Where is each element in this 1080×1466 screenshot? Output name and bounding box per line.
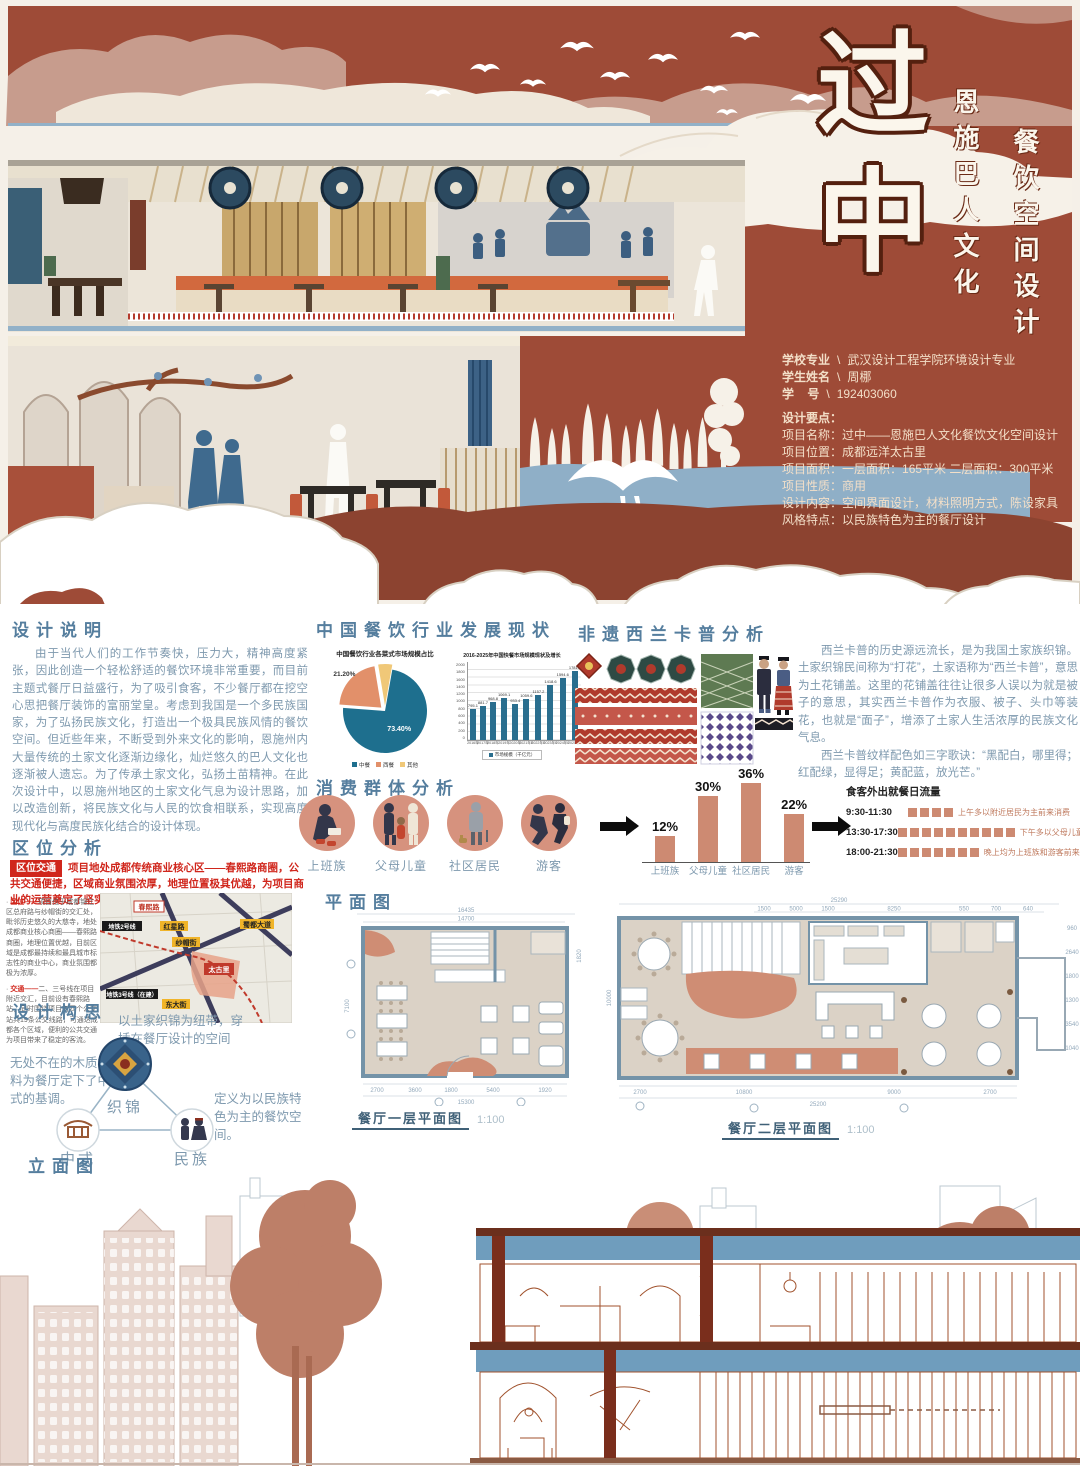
group-label: 上班族 bbox=[298, 857, 356, 874]
flow-units bbox=[898, 848, 979, 857]
consumer-group: 游客 bbox=[520, 794, 578, 874]
location-bullet: · 区位——项目位于成都锦江区总府路与纱帽街的交汇处，毗邻历史悠久的大慈寺，地处… bbox=[6, 898, 98, 979]
flow-unit-square bbox=[920, 808, 929, 817]
svg-text:15300: 15300 bbox=[458, 1100, 475, 1106]
consumer-bar-社区居民: 36%社区居民 bbox=[738, 766, 764, 862]
bar-2022年E: 1157.22022年E bbox=[532, 689, 544, 740]
group-label: 游客 bbox=[520, 857, 578, 874]
pie-value-label: 21.20% bbox=[333, 671, 355, 678]
y-tick: 1800 bbox=[456, 669, 465, 674]
svg-text:7100: 7100 bbox=[345, 999, 351, 1013]
flow-unit-square bbox=[932, 808, 941, 817]
info-point: 项目名称：过中——恩施巴人文化餐饮文化空间设计 bbox=[782, 427, 1076, 444]
ethnic-couple-icon bbox=[171, 1109, 213, 1151]
svg-text:1920: 1920 bbox=[538, 1088, 552, 1094]
concept-diagram: 织锦 中式 民族 bbox=[30, 1028, 280, 1168]
indigo-textile-icon bbox=[468, 360, 492, 446]
plant-icon bbox=[44, 256, 56, 276]
brocade-medallion-icon bbox=[99, 1038, 151, 1090]
project-info: 学校专业\武汉设计工程学院环境设计专业 学生姓名\周梛 学 号\19240306… bbox=[782, 352, 1076, 529]
svg-text:10000: 10000 bbox=[607, 989, 613, 1006]
medallion-row bbox=[577, 654, 695, 683]
visit-flow: 食客外出就餐日流量 9:30-11:30上午多以附近居民为主前来消费 13:30… bbox=[846, 784, 1080, 867]
poster-subtitle-2: 餐饮空间设计 bbox=[1006, 128, 1043, 344]
svg-text:25200: 25200 bbox=[810, 1102, 827, 1108]
blue-accent-wall bbox=[8, 188, 42, 284]
flow-unit-square bbox=[958, 828, 967, 837]
legend-item: 西餐 bbox=[376, 761, 394, 769]
xilankapu-paragraph: 西兰卡普的历史源远流长，是为我国土家族织锦。土家织锦民间称为“打花”，土家语称为… bbox=[798, 643, 1078, 748]
consumer-bar-父母儿童: 30%父母儿童 bbox=[695, 779, 721, 862]
location-map: 春熙路 红星路 纱帽街 蜀都大道 东大街 太古里 地铁2号线 地铁3号线（在建） bbox=[100, 893, 292, 1023]
concept-node-label: 民族 bbox=[174, 1151, 210, 1168]
flow-time: 18:00-21:30 bbox=[846, 847, 898, 858]
flow-units bbox=[898, 828, 1015, 837]
consumer-bar-游客: 22%游客 bbox=[781, 797, 807, 862]
svg-text:3600: 3600 bbox=[408, 1088, 422, 1094]
flow-unit-square bbox=[946, 828, 955, 837]
flow-desc: 下午多以父母儿童和游客 bbox=[1020, 827, 1080, 838]
svg-text:1500: 1500 bbox=[821, 907, 835, 913]
design-poster: 过 中 恩施巴人文化 餐饮空间设计 学校专业\武汉设计工程学院环境设计专业 学生… bbox=[0, 0, 1080, 1466]
info-row: 学生姓名\周梛 bbox=[782, 369, 1076, 386]
svg-text:1800: 1800 bbox=[444, 1088, 458, 1094]
y-tick: 400 bbox=[456, 720, 465, 725]
consumer-group: 父母儿童 bbox=[372, 794, 430, 874]
flow-unit-square bbox=[982, 828, 991, 837]
arrow-right-icon bbox=[600, 822, 626, 831]
flow-unit-square bbox=[1006, 828, 1015, 837]
section-title-elevation: 立面图 bbox=[28, 1152, 100, 1177]
flow-unit-square bbox=[910, 828, 919, 837]
svg-text:1500: 1500 bbox=[757, 907, 771, 913]
bar-2024年E: 1594.62024年E bbox=[557, 672, 569, 740]
svg-text:3540: 3540 bbox=[1065, 1022, 1079, 1028]
bar-2017年: 881.72017年 bbox=[478, 700, 488, 740]
flow-unit-square bbox=[908, 808, 917, 817]
info-value: 武汉设计工程学院环境设计专业 bbox=[847, 352, 1015, 369]
poster-title-char1: 过 bbox=[788, 18, 958, 155]
svg-text:1040: 1040 bbox=[1065, 1046, 1079, 1052]
pie-value-label: 73.40% bbox=[387, 726, 412, 733]
cuisine-pie-chart: 中国餐饮行业各菜式市场规模占比 73.40%21.20%5.40% 中餐西餐其他 bbox=[316, 648, 454, 769]
orange-banquette bbox=[176, 276, 668, 290]
flow-unit-square bbox=[946, 848, 955, 857]
svg-text:2700: 2700 bbox=[983, 1090, 997, 1096]
flow-unit-square bbox=[994, 828, 1003, 837]
plant-icon bbox=[436, 256, 450, 290]
flow-row: 18:00-21:30晚上均为上班族和游客前来消费 bbox=[846, 847, 1080, 858]
flow-unit-square bbox=[970, 828, 979, 837]
info-point: 风格特点：以民族特色为主的餐厅设计 bbox=[782, 512, 1076, 529]
chinese-building-icon bbox=[57, 1109, 99, 1151]
svg-text:9000: 9000 bbox=[887, 1090, 901, 1096]
y-tick: 1200 bbox=[456, 691, 465, 696]
section-title-location: 区位分析 bbox=[12, 834, 108, 859]
map-label-road: 东大街 bbox=[166, 1000, 187, 1009]
render-second-floor bbox=[8, 160, 745, 332]
xilankapu-paragraph: 西兰卡普纹样配色如三字歌诀：“黑配白，哪里得；红配绿，显得足；黄配蓝，放光芒。” bbox=[798, 748, 1078, 783]
y-tick: 1000 bbox=[456, 698, 465, 703]
group-label: 社区居民 bbox=[446, 857, 504, 874]
flow-unit-square bbox=[944, 808, 953, 817]
svg-text:1820: 1820 bbox=[577, 949, 583, 963]
map-label-road: 红星路 bbox=[164, 922, 186, 931]
svg-text:16435: 16435 bbox=[458, 908, 475, 914]
y-tick: 1400 bbox=[456, 684, 465, 689]
svg-text:1300: 1300 bbox=[1065, 998, 1079, 1004]
svg-text:640: 640 bbox=[1023, 907, 1034, 913]
svg-text:1800: 1800 bbox=[1065, 974, 1079, 980]
flow-unit-square bbox=[910, 848, 919, 857]
section-title-concept: 设计构思 bbox=[12, 998, 108, 1023]
poster-title-char2: 中 bbox=[788, 155, 958, 292]
svg-text:2700: 2700 bbox=[370, 1088, 384, 1094]
bar-chart-plot: 795.12016年881.72017年968.82018年1069.12019… bbox=[467, 662, 581, 741]
community-resident-icon bbox=[446, 794, 504, 852]
bar-chart-legend: 市场规模（千亿元） bbox=[456, 750, 568, 760]
legend-swatch bbox=[489, 753, 493, 757]
info-point: 设计内容：空间界面设计，材料照明方式，陈设家具 bbox=[782, 495, 1076, 512]
svg-text:5400: 5400 bbox=[486, 1088, 500, 1094]
map-label-road: 纱帽街 bbox=[176, 938, 197, 947]
bar-2021年E: 1059.62021年E bbox=[520, 693, 532, 740]
info-value: 周梛 bbox=[847, 369, 871, 386]
info-point: 项目性质：商用 bbox=[782, 478, 1076, 495]
floor-plan-1: 16435 14700 bbox=[335, 906, 597, 1106]
svg-text:550: 550 bbox=[959, 907, 970, 913]
group-label: 父母儿童 bbox=[372, 857, 430, 874]
map-label-metro: 地铁2号线 bbox=[108, 923, 135, 931]
parents-children-icon bbox=[372, 794, 430, 852]
flow-title: 食客外出就餐日流量 bbox=[846, 784, 1080, 799]
flow-unit-square bbox=[898, 828, 907, 837]
map-label-road: 春熙路 bbox=[138, 903, 161, 912]
poster-title: 过 中 bbox=[788, 18, 958, 291]
tujia-costume-figures-icon bbox=[755, 656, 793, 730]
plan2-caption: 餐厅二层平面图1:100 bbox=[722, 1118, 875, 1137]
design-points-title: 设计要点： bbox=[782, 410, 1076, 427]
flow-row: 9:30-11:30上午多以附近居民为主前来消费 bbox=[846, 807, 1080, 818]
svg-text:2700: 2700 bbox=[633, 1090, 647, 1096]
consumer-groups: 上班族 父母儿童 社区居民 bbox=[298, 794, 578, 874]
svg-text:5000: 5000 bbox=[789, 907, 803, 913]
pie-value-label: 5.40% bbox=[376, 659, 395, 660]
map-label-metro: 地铁3号线（在建） bbox=[106, 991, 157, 999]
section-title-xilankapu: 非遗西兰卡普分析 bbox=[578, 620, 770, 645]
flow-unit-square bbox=[898, 848, 907, 857]
consumer-group: 上班族 bbox=[298, 794, 356, 874]
flow-unit-square bbox=[922, 828, 931, 837]
elevation-illustration bbox=[0, 1176, 1080, 1466]
info-value: 192403060 bbox=[837, 386, 897, 403]
flow-units bbox=[908, 808, 953, 817]
legend-item: 其他 bbox=[400, 761, 418, 769]
bar-2020年: 933.42020年 bbox=[510, 698, 520, 740]
section-title-industry: 中国餐饮行业发展现状 bbox=[316, 616, 556, 641]
y-tick: 2000 bbox=[456, 662, 465, 667]
flow-unit-square bbox=[958, 848, 967, 857]
info-row: 学校专业\武汉设计工程学院环境设计专业 bbox=[782, 352, 1076, 369]
svg-text:700: 700 bbox=[991, 907, 1002, 913]
bar-chart-y-axis: 2000180016001400120010008006004002000 bbox=[456, 662, 467, 740]
svg-text:960: 960 bbox=[1067, 926, 1078, 932]
svg-text:25290: 25290 bbox=[831, 898, 848, 904]
y-tick: 800 bbox=[456, 706, 465, 711]
info-row: 学 号\192403060 bbox=[782, 386, 1076, 403]
consumer-group: 社区居民 bbox=[446, 794, 504, 874]
flow-unit-square bbox=[922, 848, 931, 857]
arrow-right-icon bbox=[812, 822, 838, 831]
map-label-road: 蜀都大道 bbox=[243, 920, 271, 929]
poster-subtitle-1: 恩施巴人文化 bbox=[946, 88, 983, 304]
y-tick: 1600 bbox=[456, 677, 465, 682]
consumer-bar-上班族: 12%上班族 bbox=[652, 819, 678, 862]
flow-time: 9:30-11:30 bbox=[846, 807, 908, 818]
bar-2019年: 1069.12019年 bbox=[498, 692, 510, 740]
y-tick: 0 bbox=[456, 735, 465, 740]
flow-unit-square bbox=[934, 848, 943, 857]
pie-legend: 中餐西餐其他 bbox=[316, 761, 454, 769]
bar-2018年: 968.82018年 bbox=[488, 696, 498, 740]
flow-desc: 晚上均为上班族和游客前来消费 bbox=[984, 847, 1080, 858]
section-title-design-note: 设计说明 bbox=[12, 616, 108, 641]
legend-item: 中餐 bbox=[352, 761, 370, 769]
xilankapu-body: 西兰卡普的历史源远流长，是为我国土家族织锦。土家织锦民间称为“打花”，土家语称为… bbox=[798, 643, 1078, 783]
plan1-caption: 餐厅一层平面图1:100 bbox=[352, 1108, 505, 1127]
flow-unit-square bbox=[934, 828, 943, 837]
y-tick: 200 bbox=[456, 728, 465, 733]
flow-time: 13:30-17:30 bbox=[846, 827, 898, 838]
fastfood-bar-chart: 2016-2025年中国快餐市场规模现状及增长 2000180016001400… bbox=[456, 652, 568, 760]
bar-chart-title: 2016-2025年中国快餐市场规模现状及增长 bbox=[456, 652, 568, 659]
tourist-icon bbox=[520, 794, 578, 852]
flow-row: 13:30-17:30下午多以父母儿童和游客 bbox=[846, 827, 1080, 838]
info-point: 项目面积：一层面积：165平米 二层面积：300平米 bbox=[782, 461, 1076, 478]
pie-chart-title: 中国餐饮行业各菜式市场规模占比 bbox=[316, 648, 454, 658]
bar-2016年: 795.12016年 bbox=[468, 703, 478, 740]
pie-chart: 73.40%21.20%5.40% bbox=[316, 659, 454, 759]
map-label-site: 太古里 bbox=[209, 965, 230, 974]
svg-text:14700: 14700 bbox=[458, 917, 475, 923]
pendant-lamp-icon bbox=[60, 178, 104, 204]
location-badge: 区位交通 bbox=[10, 860, 62, 877]
floor-plan-2: 25290 1500 5000 1500 8250 550 700 640 bbox=[604, 896, 1080, 1114]
design-note-body: 由于当代人们的工作节奏快，压力大，精神高度紧张，因此创造一个轻松舒适的餐饮环境非… bbox=[12, 646, 308, 836]
wall-art bbox=[130, 200, 146, 270]
concept-node-label: 织锦 bbox=[107, 1099, 143, 1116]
svg-text:10800: 10800 bbox=[736, 1090, 753, 1096]
bar-2023年E: 1418.62023年E bbox=[544, 679, 556, 740]
flow-unit-square bbox=[970, 848, 979, 857]
svg-text:8250: 8250 bbox=[887, 907, 901, 913]
brocade-pattern-swatch-icon bbox=[575, 652, 793, 778]
y-tick: 600 bbox=[456, 713, 465, 718]
flow-desc: 上午多以附近居民为主前来消费 bbox=[958, 807, 1070, 818]
svg-text:2640: 2640 bbox=[1065, 950, 1079, 956]
office-worker-icon bbox=[298, 794, 356, 852]
info-point: 项目位置：成都远洋太古里 bbox=[782, 444, 1076, 461]
